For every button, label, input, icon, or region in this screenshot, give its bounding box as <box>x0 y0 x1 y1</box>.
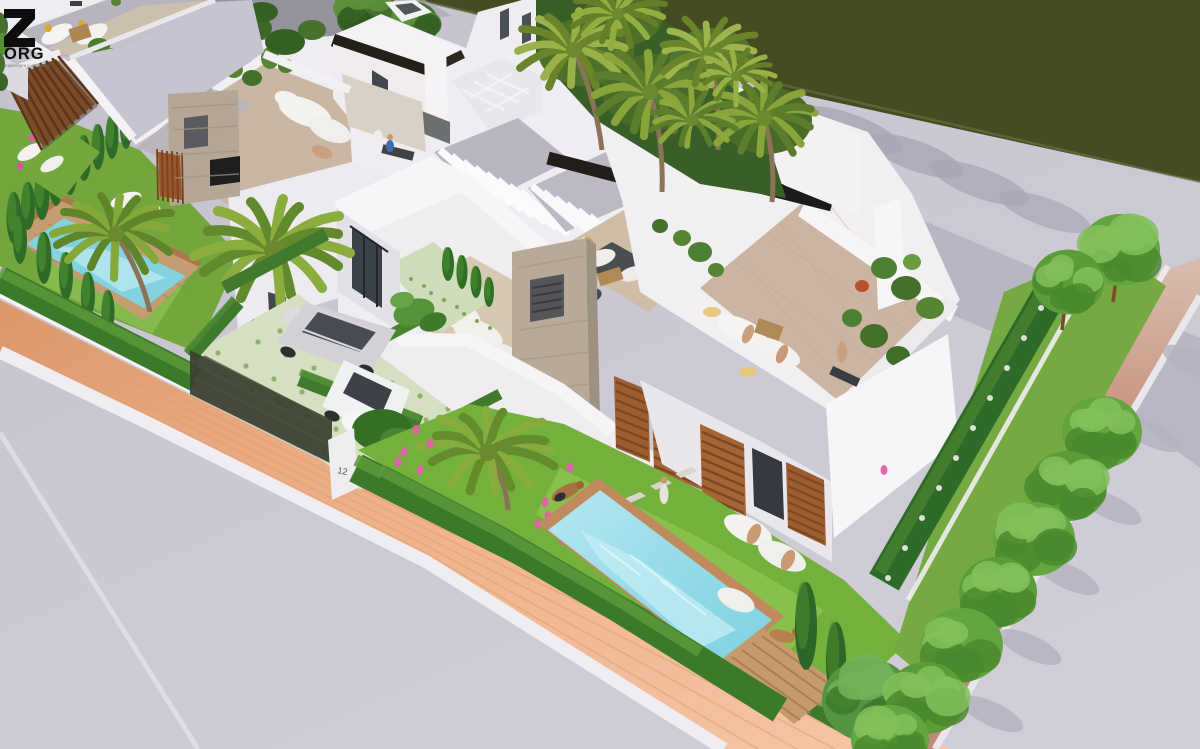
svg-text:12: 12 <box>337 465 349 477</box>
svg-text:arquitectura y urbanismo: arquitectura y urbanismo <box>4 63 51 68</box>
svg-text:ORG: ORG <box>4 45 45 63</box>
